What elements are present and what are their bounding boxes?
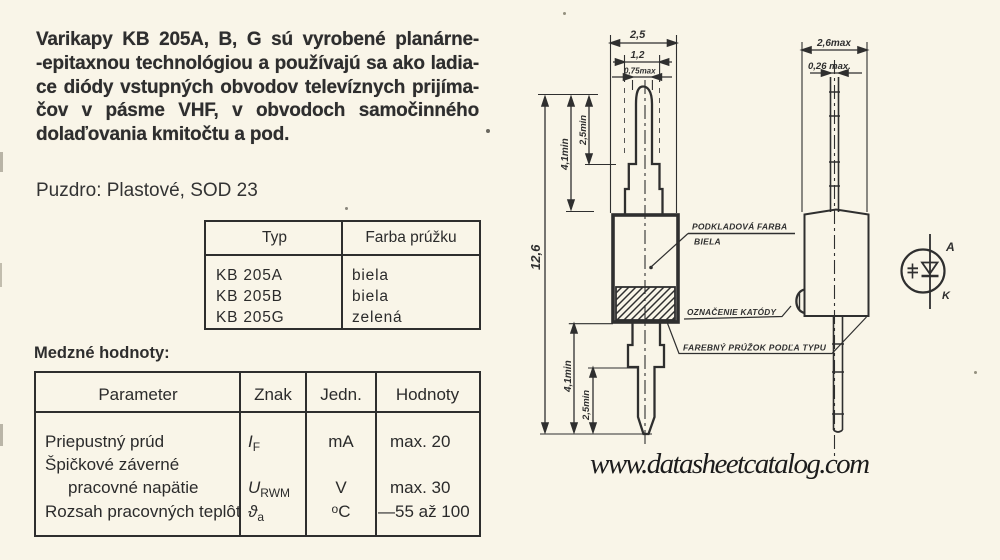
svg-text:FAREBNÝ PRÚŽOK PODĽA TYPU: FAREBNÝ PRÚŽOK PODĽA TYPU [683, 342, 827, 353]
svg-text:0,75max: 0,75max [624, 67, 656, 76]
svg-text:OZNAČENIE KATÓDY: OZNAČENIE KATÓDY [687, 306, 777, 317]
svg-text:2,5min: 2,5min [581, 390, 592, 421]
svg-text:4,1min: 4,1min [563, 360, 574, 393]
svg-text:0,26 max.: 0,26 max. [808, 61, 851, 72]
svg-text:A: A [945, 240, 955, 254]
svg-text:1,2: 1,2 [631, 50, 645, 61]
svg-text:12,6: 12,6 [528, 244, 543, 270]
svg-text:2,5min: 2,5min [578, 115, 589, 146]
svg-text:2,6max: 2,6max [816, 38, 851, 49]
svg-text:2,5: 2,5 [629, 29, 646, 41]
svg-text:PODKLADOVÁ FARBA: PODKLADOVÁ FARBA [692, 222, 787, 232]
svg-text:BIELA: BIELA [694, 237, 721, 247]
svg-text:4,1min: 4,1min [560, 138, 571, 171]
svg-text:K: K [942, 290, 951, 302]
